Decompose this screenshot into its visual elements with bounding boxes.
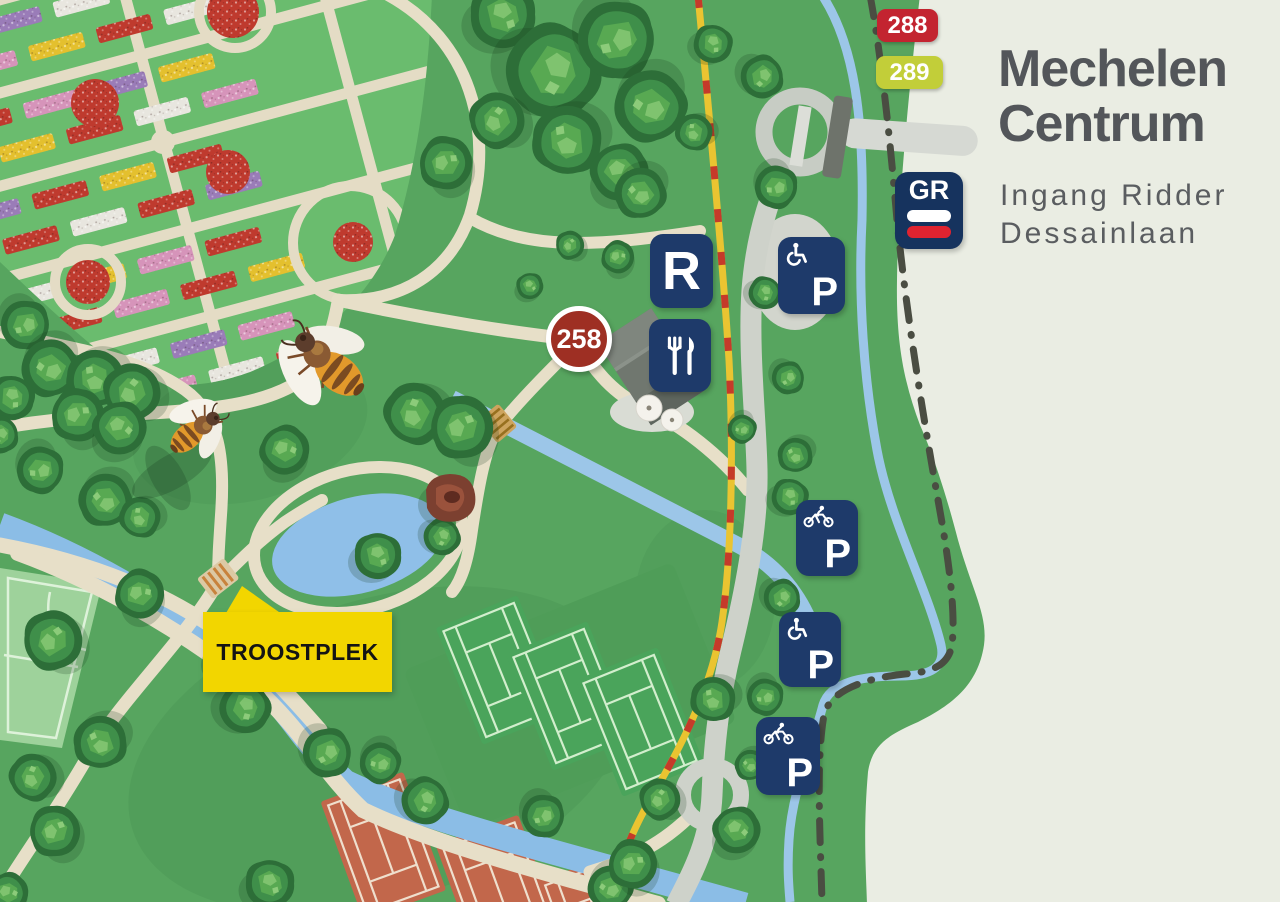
cycle-node-badge-red[interactable]: 288 xyxy=(877,9,938,42)
gr-red-stripe-icon xyxy=(907,226,951,238)
entrance-title-block: Mechelen Centrum Ingang Ridder Dessainla… xyxy=(998,42,1280,252)
cycle-node-badge-green[interactable]: 289 xyxy=(876,56,943,89)
troostplek-text: TROOSTPLEK xyxy=(216,639,378,666)
parking-accessible-marker[interactable]: P xyxy=(778,237,845,314)
gr-white-stripe-icon xyxy=(907,210,951,222)
parking-letter: P xyxy=(824,537,851,571)
food-marker[interactable] xyxy=(649,319,711,392)
bicycle-icon xyxy=(803,505,835,528)
restaurant-letter: R xyxy=(662,240,701,302)
junction-number: 258 xyxy=(556,324,601,355)
wheelchair-icon xyxy=(786,617,811,642)
restaurant-marker[interactable]: R xyxy=(650,234,713,308)
parking-letter: P xyxy=(811,275,838,309)
bicycle-icon xyxy=(763,722,795,745)
parking-letter: P xyxy=(786,756,813,790)
destination-title-line2: Centrum xyxy=(998,97,1280,152)
troostplek-label[interactable]: TROOSTPLEK xyxy=(203,612,392,692)
gr-label: GR xyxy=(909,176,950,206)
parking-bicycle-marker[interactable]: P xyxy=(796,500,858,576)
parking-letter: P xyxy=(807,648,834,682)
cycle-node-number: 288 xyxy=(887,12,927,40)
entrance-subtitle-line2: Dessainlaan xyxy=(1000,215,1280,253)
cycle-node-number: 289 xyxy=(889,59,929,87)
parking-accessible-marker[interactable]: P xyxy=(779,612,841,687)
destination-title-line1: Mechelen xyxy=(998,42,1280,97)
gr-trail-marker[interactable]: GR xyxy=(895,172,963,249)
junction-node-badge[interactable]: 258 xyxy=(546,306,612,372)
wheelchair-icon xyxy=(785,242,811,268)
parking-bicycle-marker[interactable]: P xyxy=(756,717,820,795)
cutlery-icon xyxy=(661,334,699,378)
park-map-screenshot: TROOSTPLEK 258 R P P P xyxy=(0,0,1280,902)
garden-path-node xyxy=(151,130,175,154)
entrance-subtitle-line1: Ingang Ridder xyxy=(1000,177,1280,215)
